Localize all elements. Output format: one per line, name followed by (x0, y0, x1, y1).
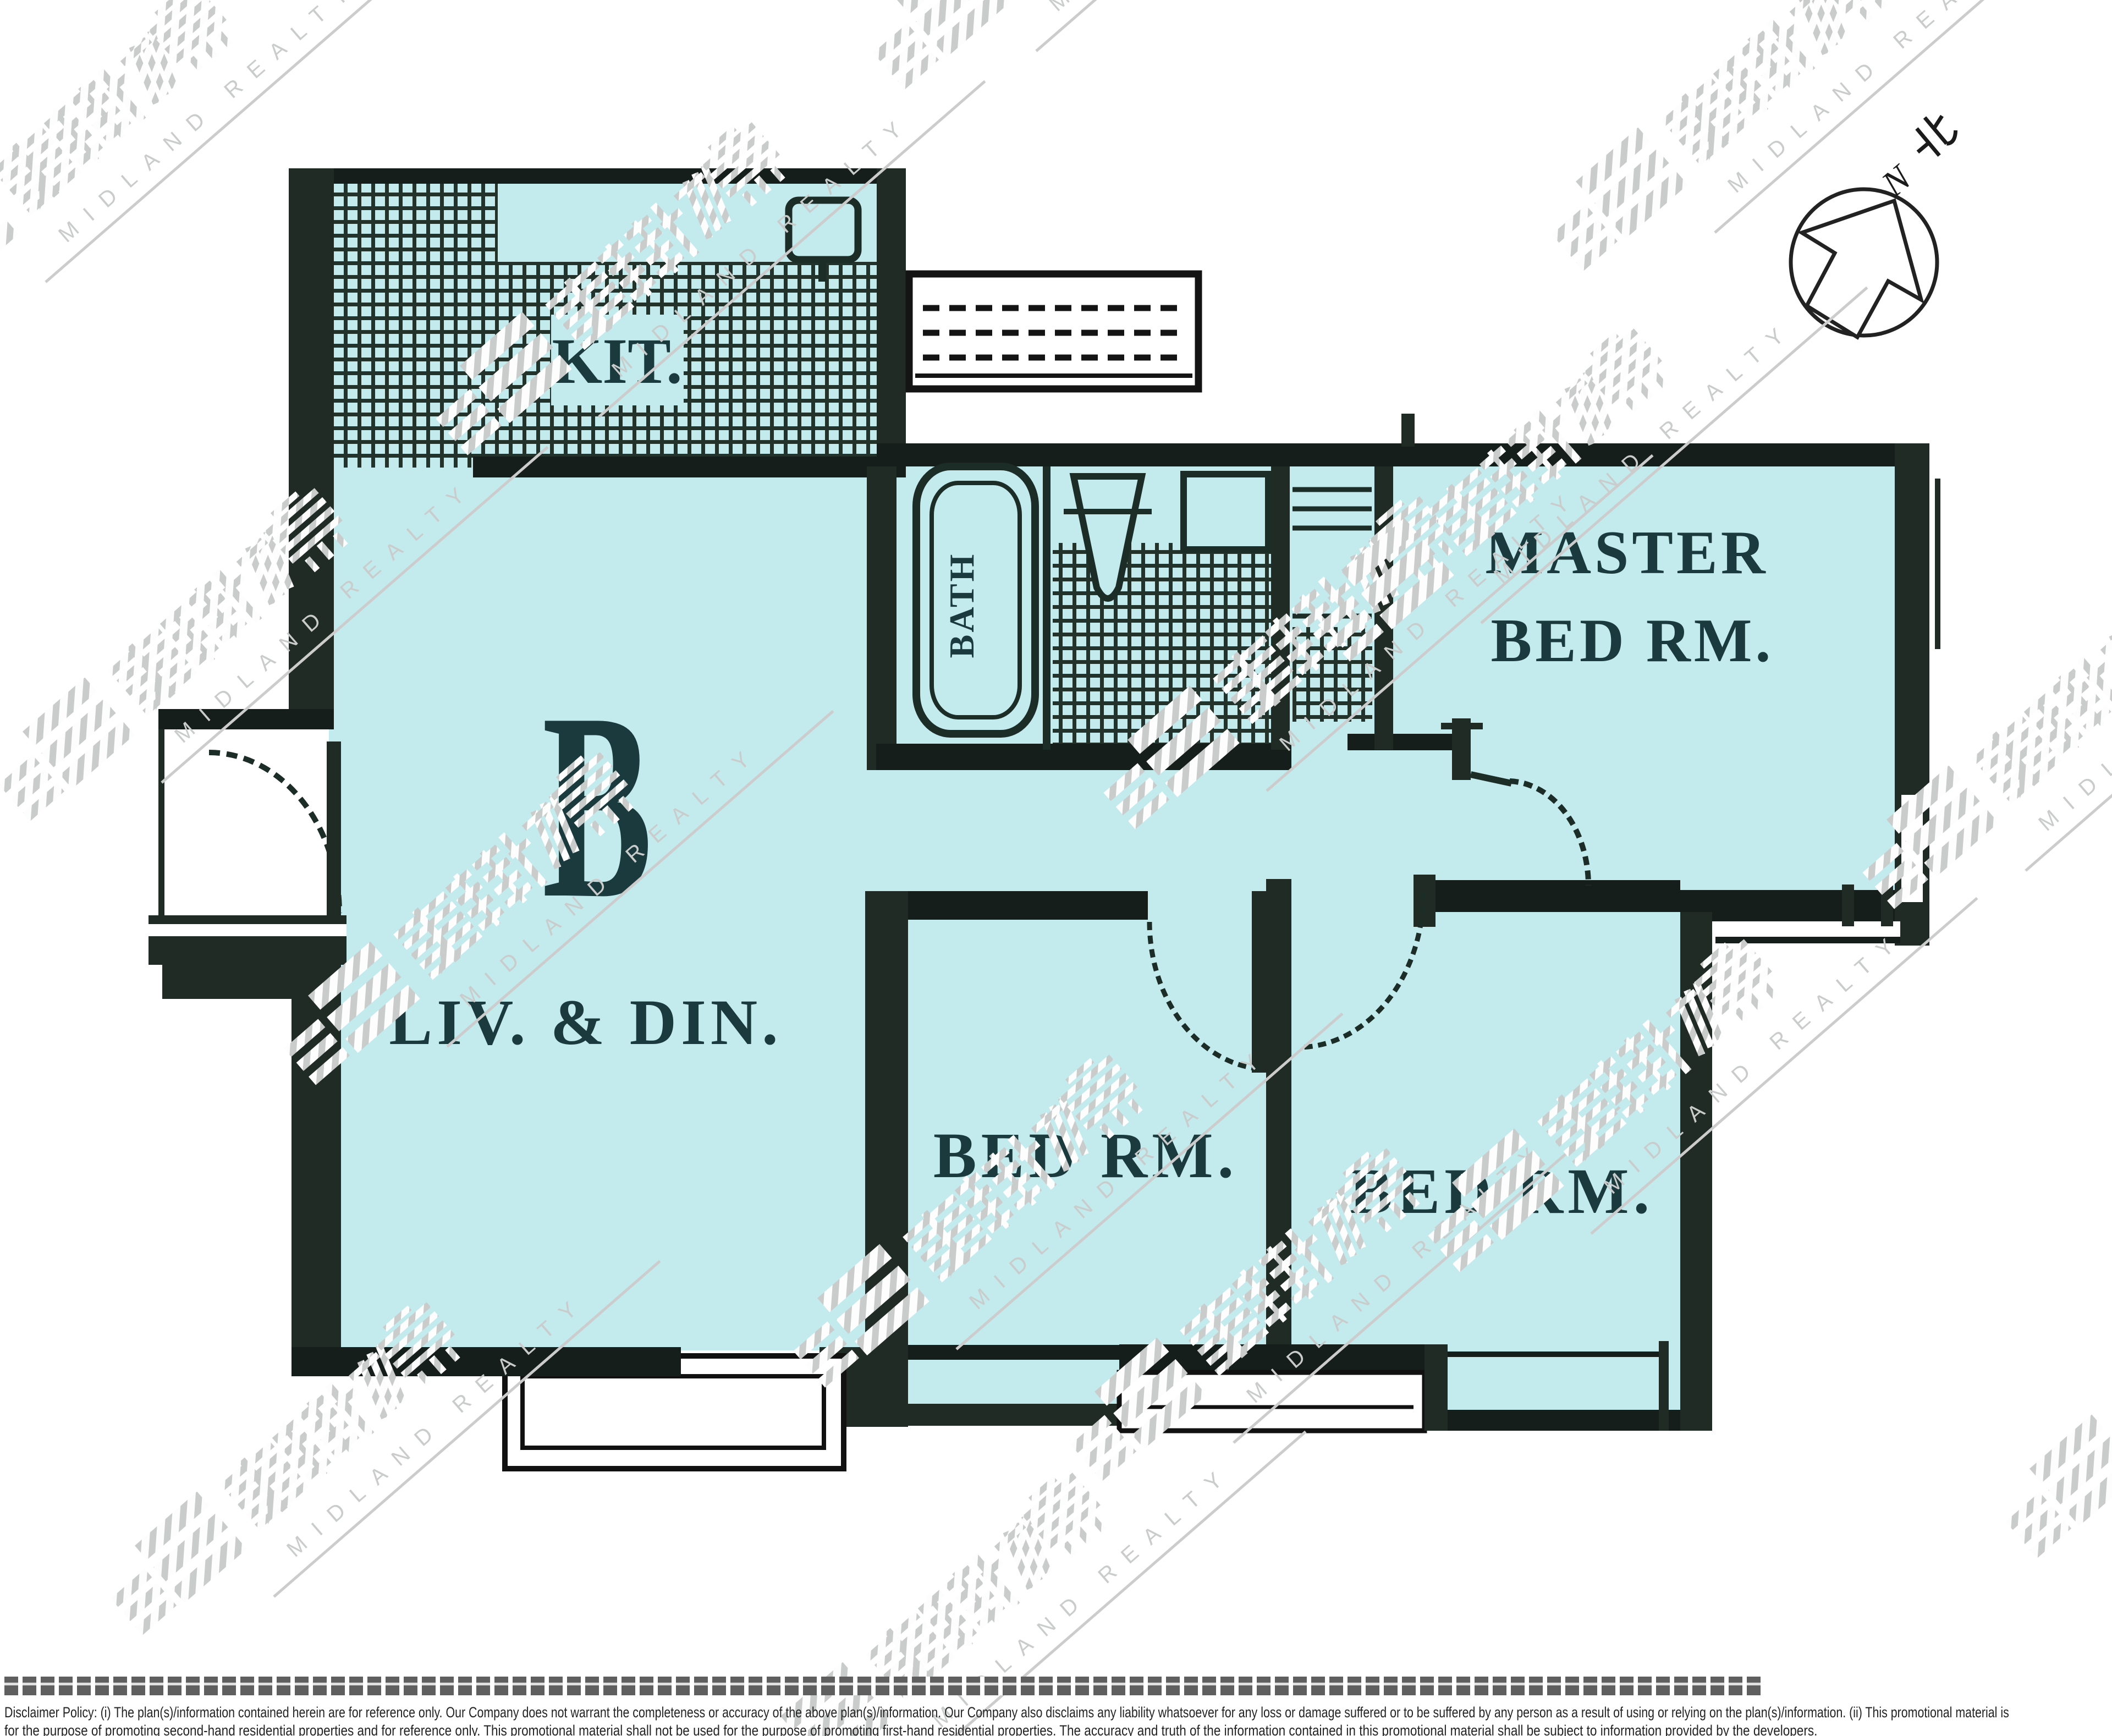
svg-text:BED RM.: BED RM. (1491, 607, 1774, 675)
svg-text:BATH: BATH (942, 552, 981, 658)
